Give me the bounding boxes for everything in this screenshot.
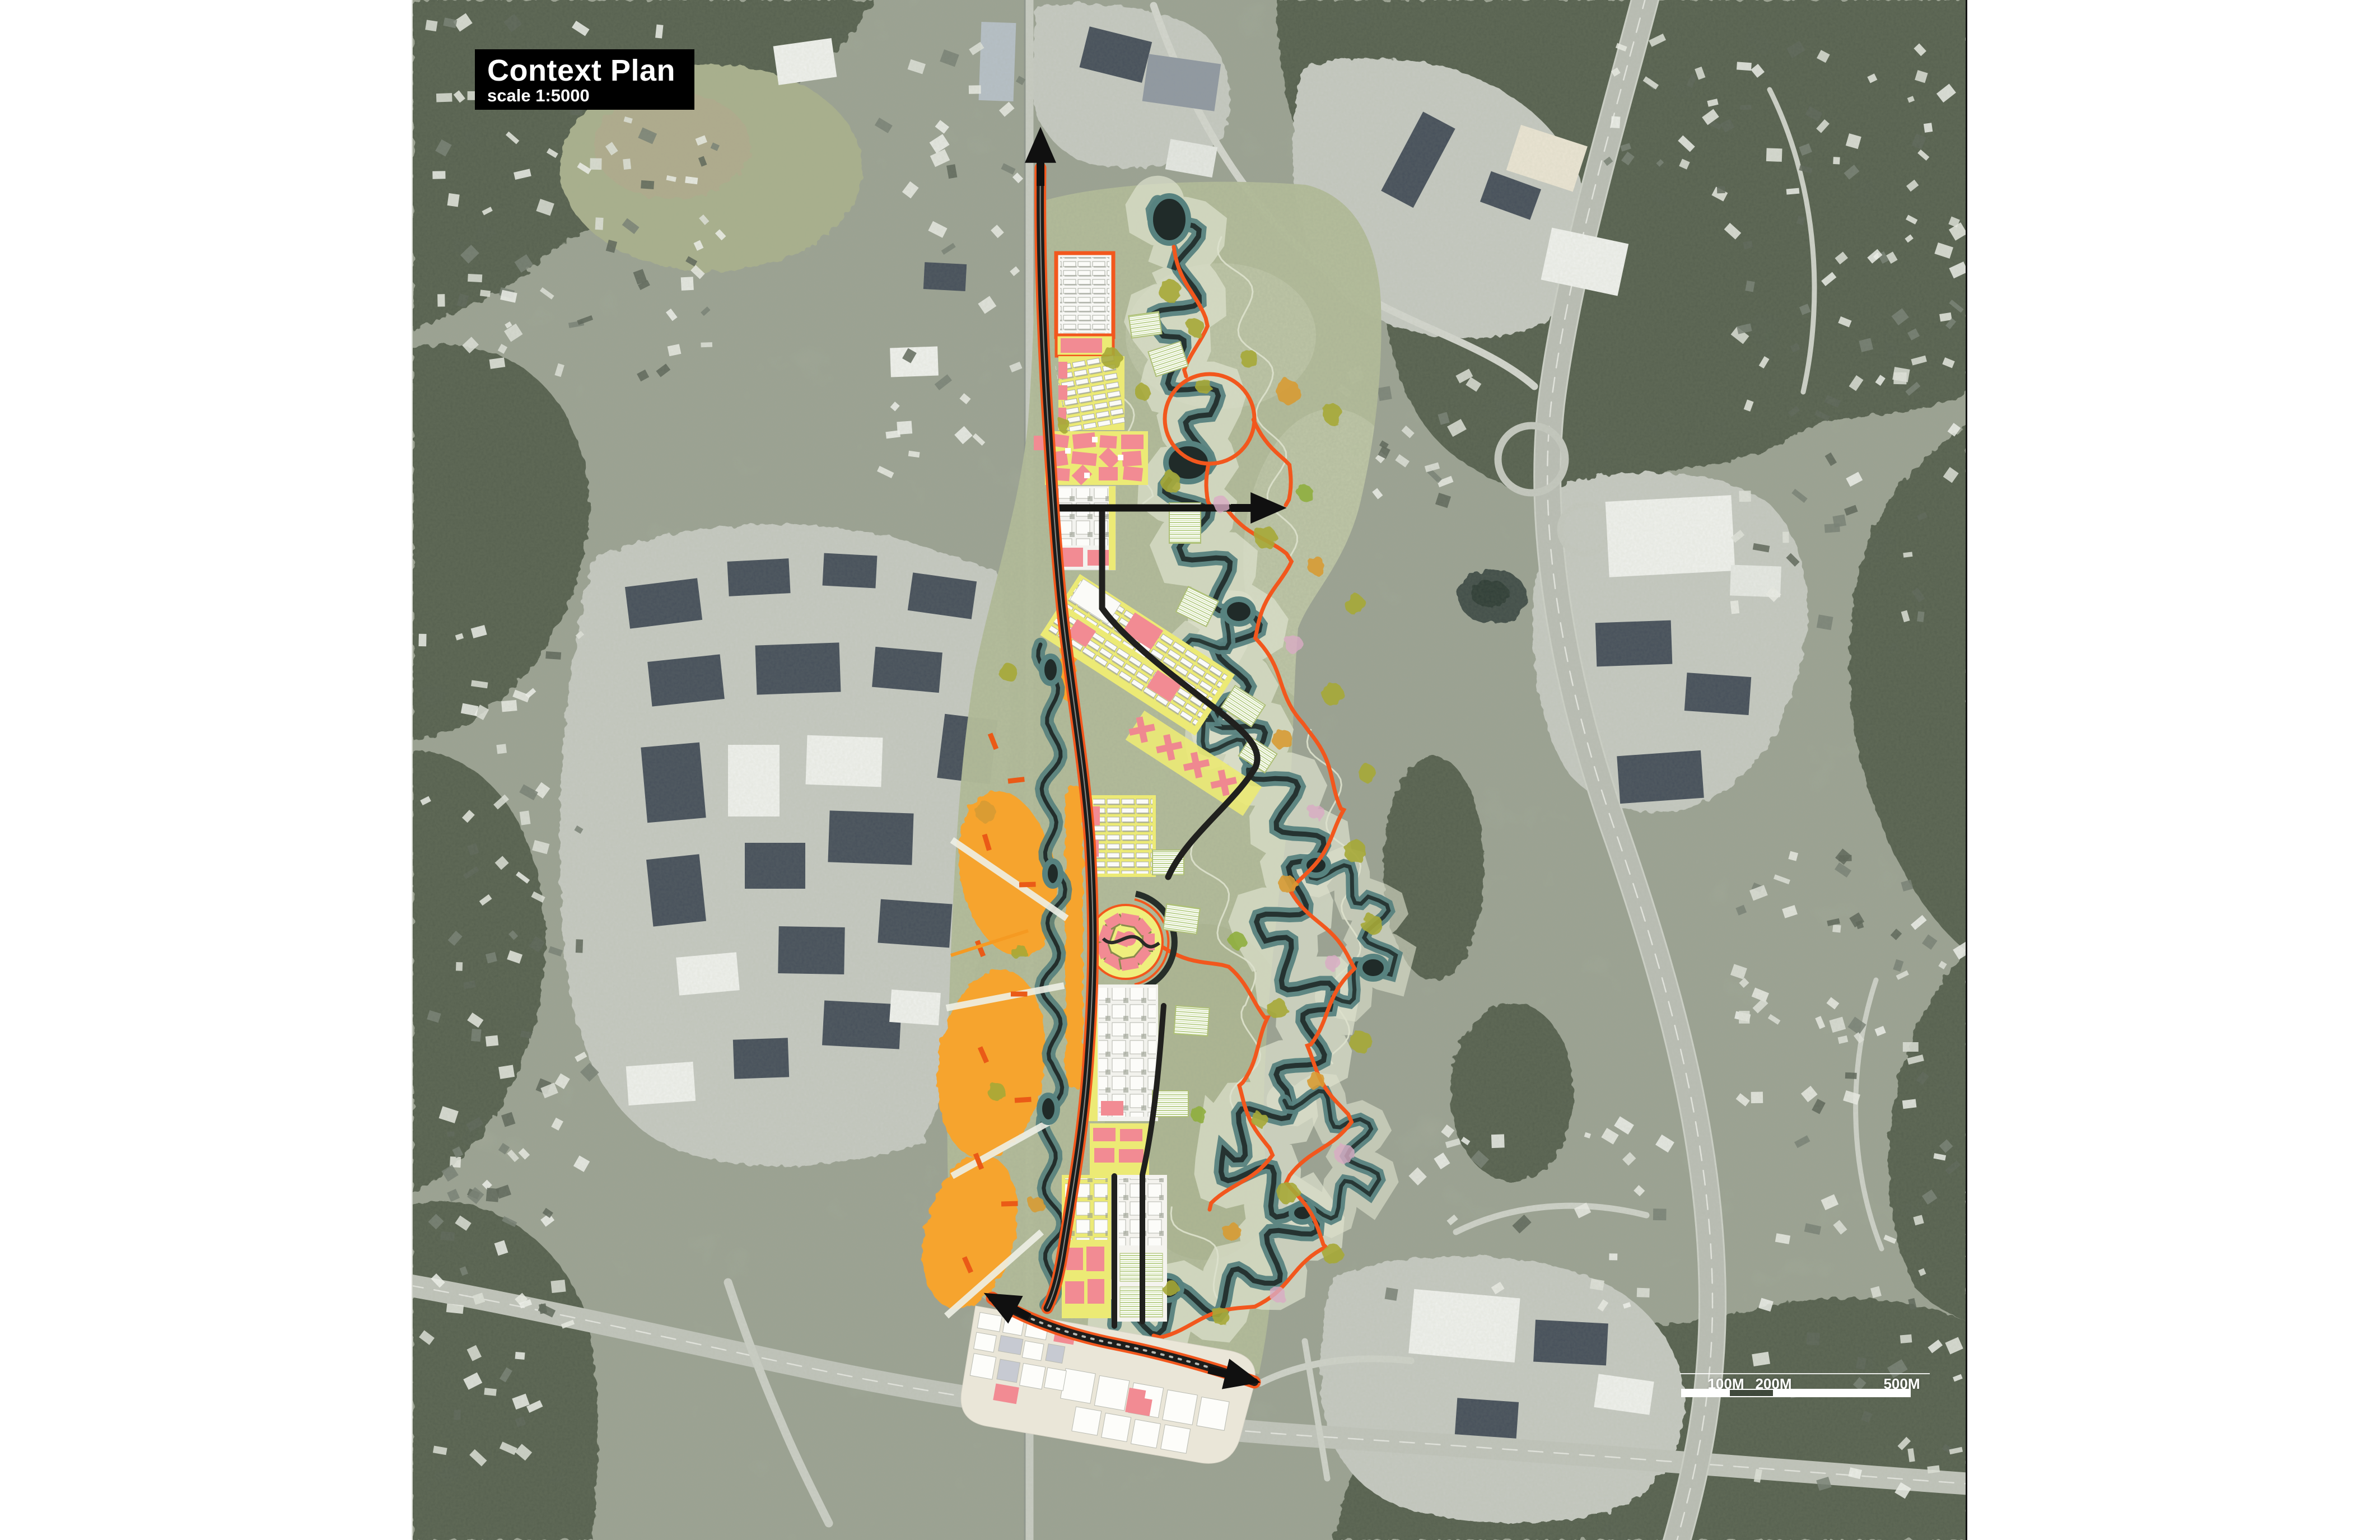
scale-segment-0-100	[1681, 1389, 1729, 1397]
scale-labels: 100M 200M 500M	[1680, 1375, 1930, 1390]
page-title: Context Plan	[487, 55, 684, 86]
scale-bar-segments	[1681, 1389, 1911, 1397]
title-block: Context Plan scale 1:5000	[475, 49, 694, 110]
district-offices	[1055, 486, 1116, 570]
scale-bar: 100M 200M 500M	[1680, 1368, 1930, 1399]
context-plan-map	[0, 0, 2380, 1540]
scale-hairline	[1680, 1373, 1930, 1374]
scale-label: scale 1:5000	[487, 86, 684, 105]
district-small-blocks	[1090, 1123, 1149, 1175]
scale-segment-200-500	[1774, 1389, 1911, 1397]
context-plan-sheet: Context Plan scale 1:5000 100M 200M 500M	[0, 0, 2380, 1540]
photo-left-edge	[412, 0, 413, 1540]
district-south-housing	[1089, 984, 1158, 1121]
district-town-courts	[1056, 253, 1113, 356]
photo-right-edge	[1966, 0, 1967, 1540]
district-mid-housing	[1090, 795, 1156, 877]
scale-segment-100-200	[1729, 1389, 1774, 1397]
